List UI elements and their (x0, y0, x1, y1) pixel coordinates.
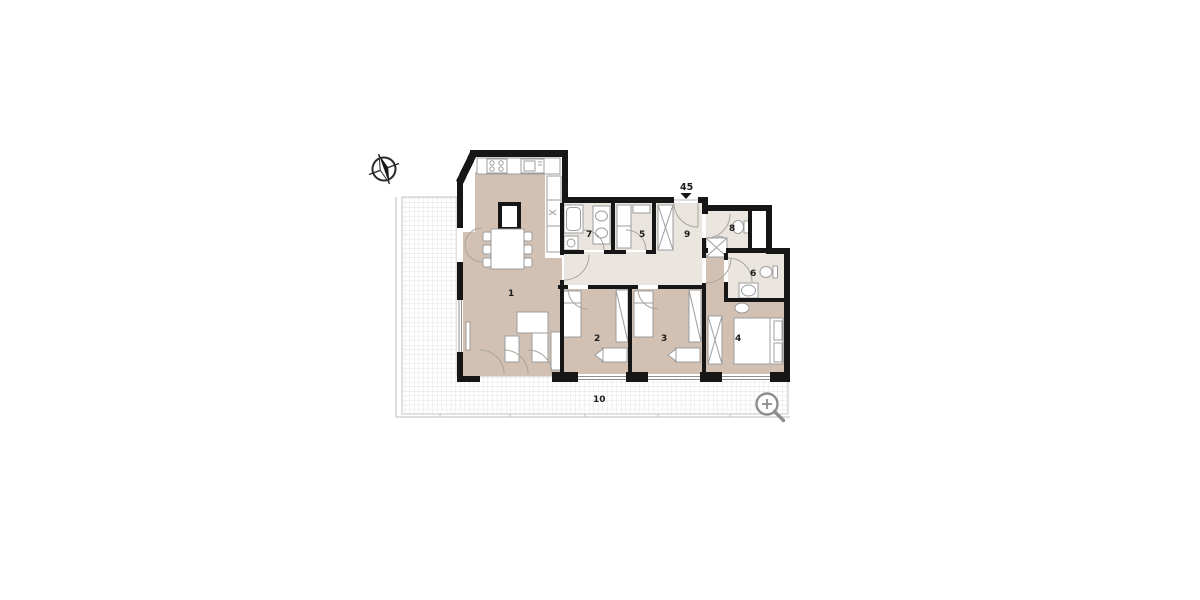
room-label-6: 6 (750, 269, 756, 279)
room-label-8: 8 (729, 224, 735, 234)
washing-machine (564, 236, 578, 250)
dining-table (491, 229, 524, 269)
radiator (466, 322, 470, 350)
room-label-3: 3 (661, 334, 667, 344)
floor-plan-page: 1 2 3 4 5 6 7 8 9 10 45 (0, 0, 1200, 600)
room-label-10: 10 (593, 395, 606, 405)
desk-2 (602, 348, 627, 362)
room-label-4: 4 (735, 334, 741, 344)
room-label-7: 7 (586, 230, 592, 240)
sink-6 (742, 285, 756, 296)
entrance-number: 45 (680, 182, 693, 193)
sofa (517, 312, 548, 333)
bed-3 (634, 291, 653, 337)
room-8-niche (752, 211, 766, 248)
compass-icon (363, 148, 404, 189)
floor-plan-svg: 1 2 3 4 5 6 7 8 9 10 45 (0, 0, 1200, 600)
bed-2 (562, 291, 581, 337)
shelf-room1 (551, 332, 561, 370)
toilet-6 (760, 267, 772, 278)
room-label-1: 1 (508, 289, 514, 299)
entrance-marker: 45 (680, 182, 693, 199)
stove (487, 159, 507, 173)
desk-3 (675, 348, 700, 362)
room-label-9: 9 (684, 230, 690, 240)
room-label-5: 5 (639, 230, 645, 240)
stool-4 (735, 303, 749, 313)
coffee-table (505, 336, 519, 362)
column (500, 204, 519, 229)
room-label-2: 2 (594, 334, 600, 344)
